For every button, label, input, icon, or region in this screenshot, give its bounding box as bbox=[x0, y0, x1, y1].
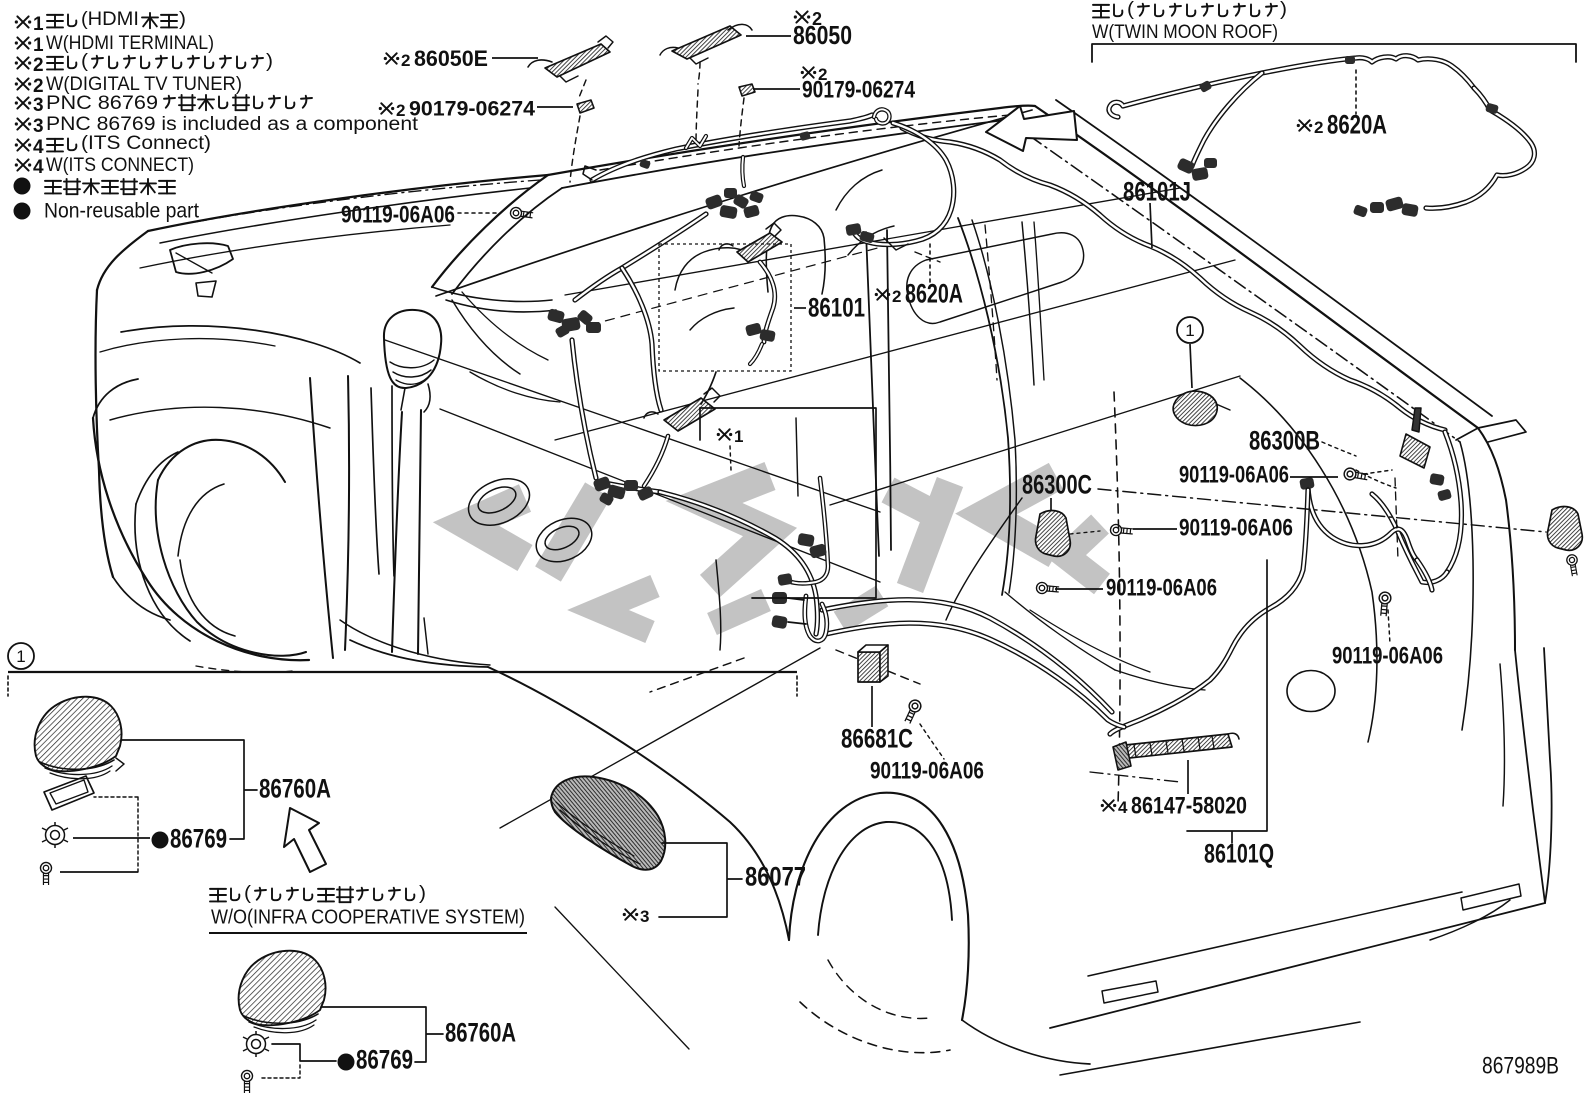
svg-text:90119-06A06: 90119-06A06 bbox=[1179, 462, 1289, 489]
svg-text:4: 4 bbox=[33, 137, 44, 158]
svg-text:90179-06274: 90179-06274 bbox=[409, 97, 535, 120]
svg-text:2: 2 bbox=[33, 76, 44, 97]
svg-text:2: 2 bbox=[892, 287, 901, 306]
svg-text:86300B: 86300B bbox=[1249, 426, 1320, 456]
svg-text:8620A: 8620A bbox=[905, 279, 963, 309]
svg-text:2: 2 bbox=[33, 55, 44, 76]
svg-text:86050: 86050 bbox=[793, 20, 852, 50]
svg-text:(HDMI: (HDMI bbox=[81, 9, 139, 30]
svg-text:(ITS Connect): (ITS Connect) bbox=[81, 133, 211, 154]
svg-text:90119-06A06: 90119-06A06 bbox=[1179, 515, 1293, 542]
svg-text:2: 2 bbox=[1314, 118, 1323, 137]
svg-text:1: 1 bbox=[734, 427, 743, 446]
svg-text:2: 2 bbox=[401, 51, 410, 70]
svg-text:1: 1 bbox=[33, 14, 44, 35]
svg-text:90119-06A06: 90119-06A06 bbox=[1332, 643, 1443, 670]
svg-text:PNC 86769 is included as a com: PNC 86769 is included as a component bbox=[46, 114, 419, 135]
svg-text:86147-58020: 86147-58020 bbox=[1131, 793, 1247, 820]
svg-text:W/O(INFRA COOPERATIVE SYSTEM): W/O(INFRA COOPERATIVE SYSTEM) bbox=[211, 907, 525, 929]
svg-text:1: 1 bbox=[1185, 321, 1194, 340]
svg-text:90119-06A06: 90119-06A06 bbox=[341, 202, 455, 229]
svg-text:86760A: 86760A bbox=[259, 774, 331, 804]
svg-text:4: 4 bbox=[1118, 798, 1128, 817]
svg-text:W(TWIN MOON ROOF): W(TWIN MOON ROOF) bbox=[1092, 22, 1278, 43]
svg-text:90119-06A06: 90119-06A06 bbox=[1106, 575, 1217, 602]
svg-text:86681C: 86681C bbox=[841, 724, 913, 754]
svg-text:1: 1 bbox=[33, 35, 44, 56]
svg-text:86760A: 86760A bbox=[445, 1018, 516, 1048]
svg-text:86769: 86769 bbox=[356, 1045, 413, 1075]
svg-text:8620A: 8620A bbox=[1327, 110, 1387, 140]
svg-text:86050E: 86050E bbox=[414, 46, 488, 71]
svg-text:4: 4 bbox=[33, 157, 44, 178]
svg-text:86101: 86101 bbox=[808, 293, 865, 323]
svg-text:86077: 86077 bbox=[745, 862, 806, 892]
svg-text:867989B: 867989B bbox=[1482, 1053, 1559, 1080]
svg-text:3: 3 bbox=[33, 116, 44, 137]
svg-text:90179-06274: 90179-06274 bbox=[802, 77, 916, 104]
svg-text:(: ( bbox=[244, 883, 252, 904]
svg-text:W(ITS CONNECT): W(ITS CONNECT) bbox=[46, 155, 194, 176]
svg-text:W(HDMI TERMINAL): W(HDMI TERMINAL) bbox=[46, 33, 214, 54]
svg-text:86769: 86769 bbox=[170, 824, 227, 854]
svg-text:): ) bbox=[179, 9, 186, 30]
svg-text:PNC 86769: PNC 86769 bbox=[46, 93, 158, 114]
svg-text:W(DIGITAL TV TUNER): W(DIGITAL TV TUNER) bbox=[46, 74, 242, 95]
svg-text:): ) bbox=[419, 883, 426, 904]
svg-text:): ) bbox=[266, 51, 273, 72]
svg-text:(: ( bbox=[81, 51, 89, 72]
svg-text:): ) bbox=[1280, 0, 1287, 20]
svg-text:86101J: 86101J bbox=[1123, 177, 1191, 207]
svg-text:3: 3 bbox=[33, 95, 44, 116]
svg-text:Non-reusable part: Non-reusable part bbox=[44, 199, 199, 222]
svg-text:90119-06A06: 90119-06A06 bbox=[870, 758, 984, 785]
svg-text:(: ( bbox=[1127, 0, 1135, 20]
svg-text:1: 1 bbox=[16, 647, 25, 666]
svg-text:3: 3 bbox=[640, 907, 649, 926]
svg-text:86300C: 86300C bbox=[1022, 470, 1092, 500]
svg-text:86101Q: 86101Q bbox=[1204, 839, 1274, 869]
